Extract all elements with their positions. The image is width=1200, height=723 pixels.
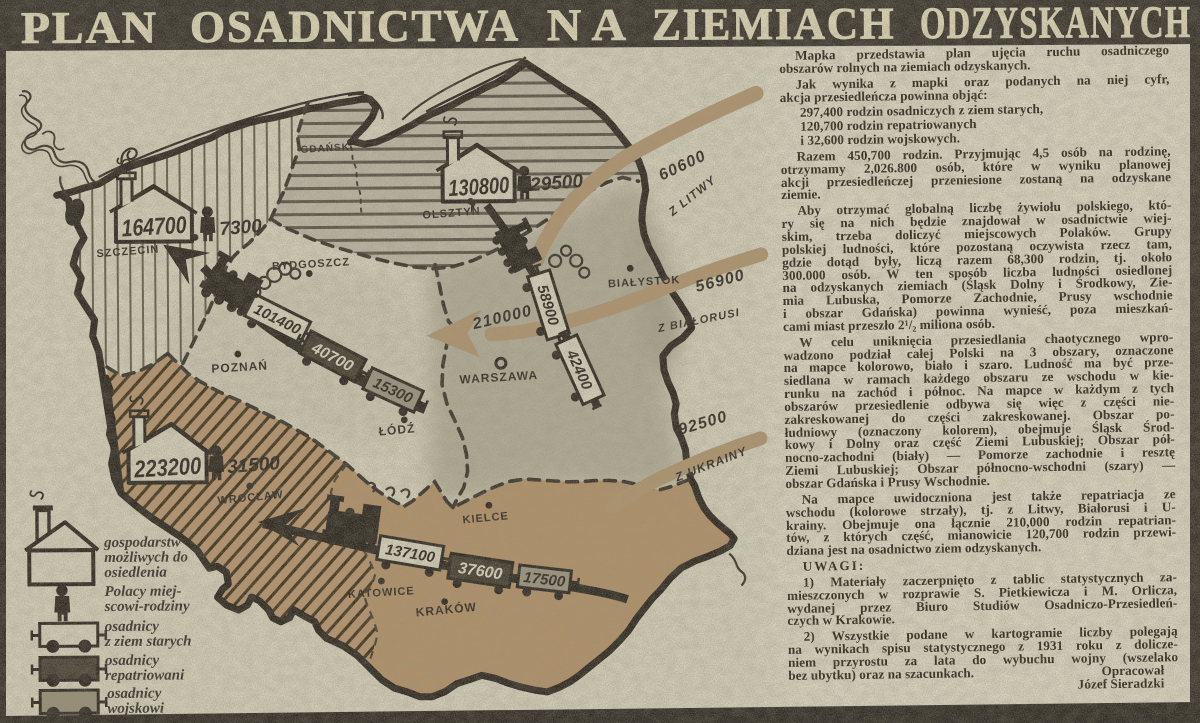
svg-text:osadnicy: osadnicy [105,653,160,669]
svg-text:możliwych do: możliwych do [104,549,188,566]
svg-text:scowi-rodziny: scowi-rodziny [104,598,190,615]
svg-text:7300: 7300 [219,216,263,240]
svg-text:osadnicy: osadnicy [107,686,162,702]
svg-text:repatriowani: repatriowani [105,667,185,684]
svg-text:osiedlenia: osiedlenia [104,565,167,581]
svg-text:z ziem starych: z ziem starych [104,633,192,650]
svg-text:31500: 31500 [226,453,281,478]
svg-text:gospodarstw: gospodarstw [103,534,182,551]
svg-text:osadnicy: osadnicy [105,619,160,635]
svg-text:29500: 29500 [528,171,584,196]
svg-text:223200: 223200 [133,453,203,484]
svg-text:164700: 164700 [121,212,188,243]
svg-text:130800: 130800 [448,172,511,202]
svg-text:Polacy miej-: Polacy miej- [104,583,181,600]
